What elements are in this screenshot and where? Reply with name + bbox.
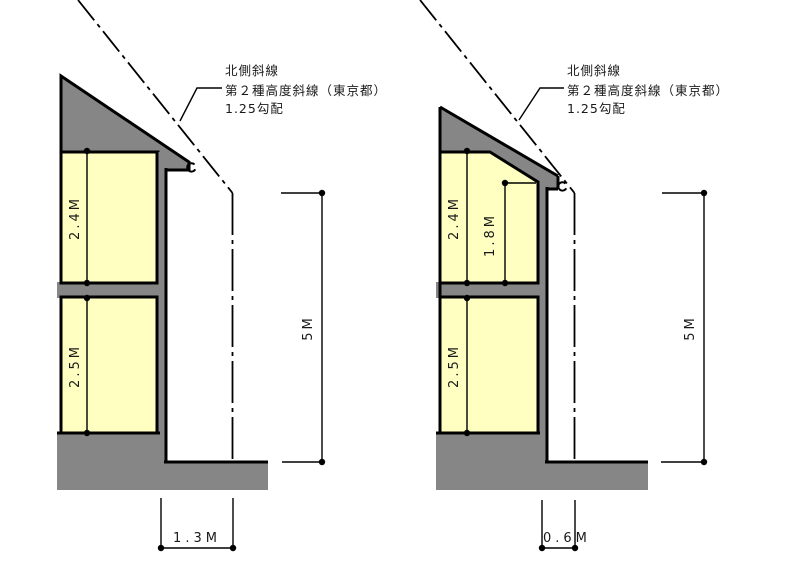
dim-dot — [319, 190, 325, 196]
annotation-line3: 1.25勾配 — [567, 101, 626, 116]
dim-dot — [84, 148, 90, 154]
dim-label-upper-room: 2.4M — [68, 196, 83, 240]
leader-line — [519, 88, 564, 120]
left-figure: 2.4M 2.5M 5M 1.3M 北側斜線 第２種高度斜線（東京都） 1.25… — [57, 0, 387, 551]
dim-dot — [502, 180, 508, 186]
dim-dot — [701, 459, 707, 465]
dim-dot — [464, 280, 470, 286]
leader-line — [180, 88, 222, 121]
dim-dot — [464, 295, 470, 301]
dim-dot — [319, 459, 325, 465]
dim-label-setback: 0.6M — [543, 531, 591, 546]
annotation-line3: 1.25勾配 — [225, 101, 284, 116]
diagram-canvas: 2.4M 2.5M 5M 1.3M 北側斜線 第２種高度斜線（東京都） 1.25… — [0, 0, 800, 566]
dim-dot — [84, 430, 90, 436]
dim-dot — [464, 148, 470, 154]
right-figure: 2.4M 1.8M 2.5M 5M 0.6M 北側斜線 第２種高度斜線（東京都）… — [420, 0, 729, 551]
dim-dot — [158, 545, 164, 551]
dim-dot — [84, 280, 90, 286]
dim-dot — [84, 295, 90, 301]
annotation-line2: 第２種高度斜線（東京都） — [567, 83, 729, 98]
dim-label-lower-room: 2.5M — [447, 344, 462, 388]
dim-label-5m: 5M — [683, 315, 698, 341]
annotation-line2: 第２種高度斜線（東京都） — [225, 83, 387, 98]
dim-label-eave-wall: 1.8M — [483, 213, 498, 257]
annotation-line1: 北側斜線 — [225, 63, 279, 78]
dim-label-lower-room: 2.5M — [68, 344, 83, 388]
dim-label-5m: 5M — [301, 315, 316, 341]
dim-dot — [230, 545, 236, 551]
dim-label-setback: 1.3M — [173, 531, 221, 546]
slant-line-diagram: 2.4M 2.5M 5M 1.3M 北側斜線 第２種高度斜線（東京都） 1.25… — [0, 0, 800, 566]
dim-label-upper-room: 2.4M — [447, 196, 462, 240]
dim-dot — [701, 190, 707, 196]
dim-dot — [464, 430, 470, 436]
dim-dot — [502, 280, 508, 286]
annotation-line1: 北側斜線 — [567, 63, 621, 78]
